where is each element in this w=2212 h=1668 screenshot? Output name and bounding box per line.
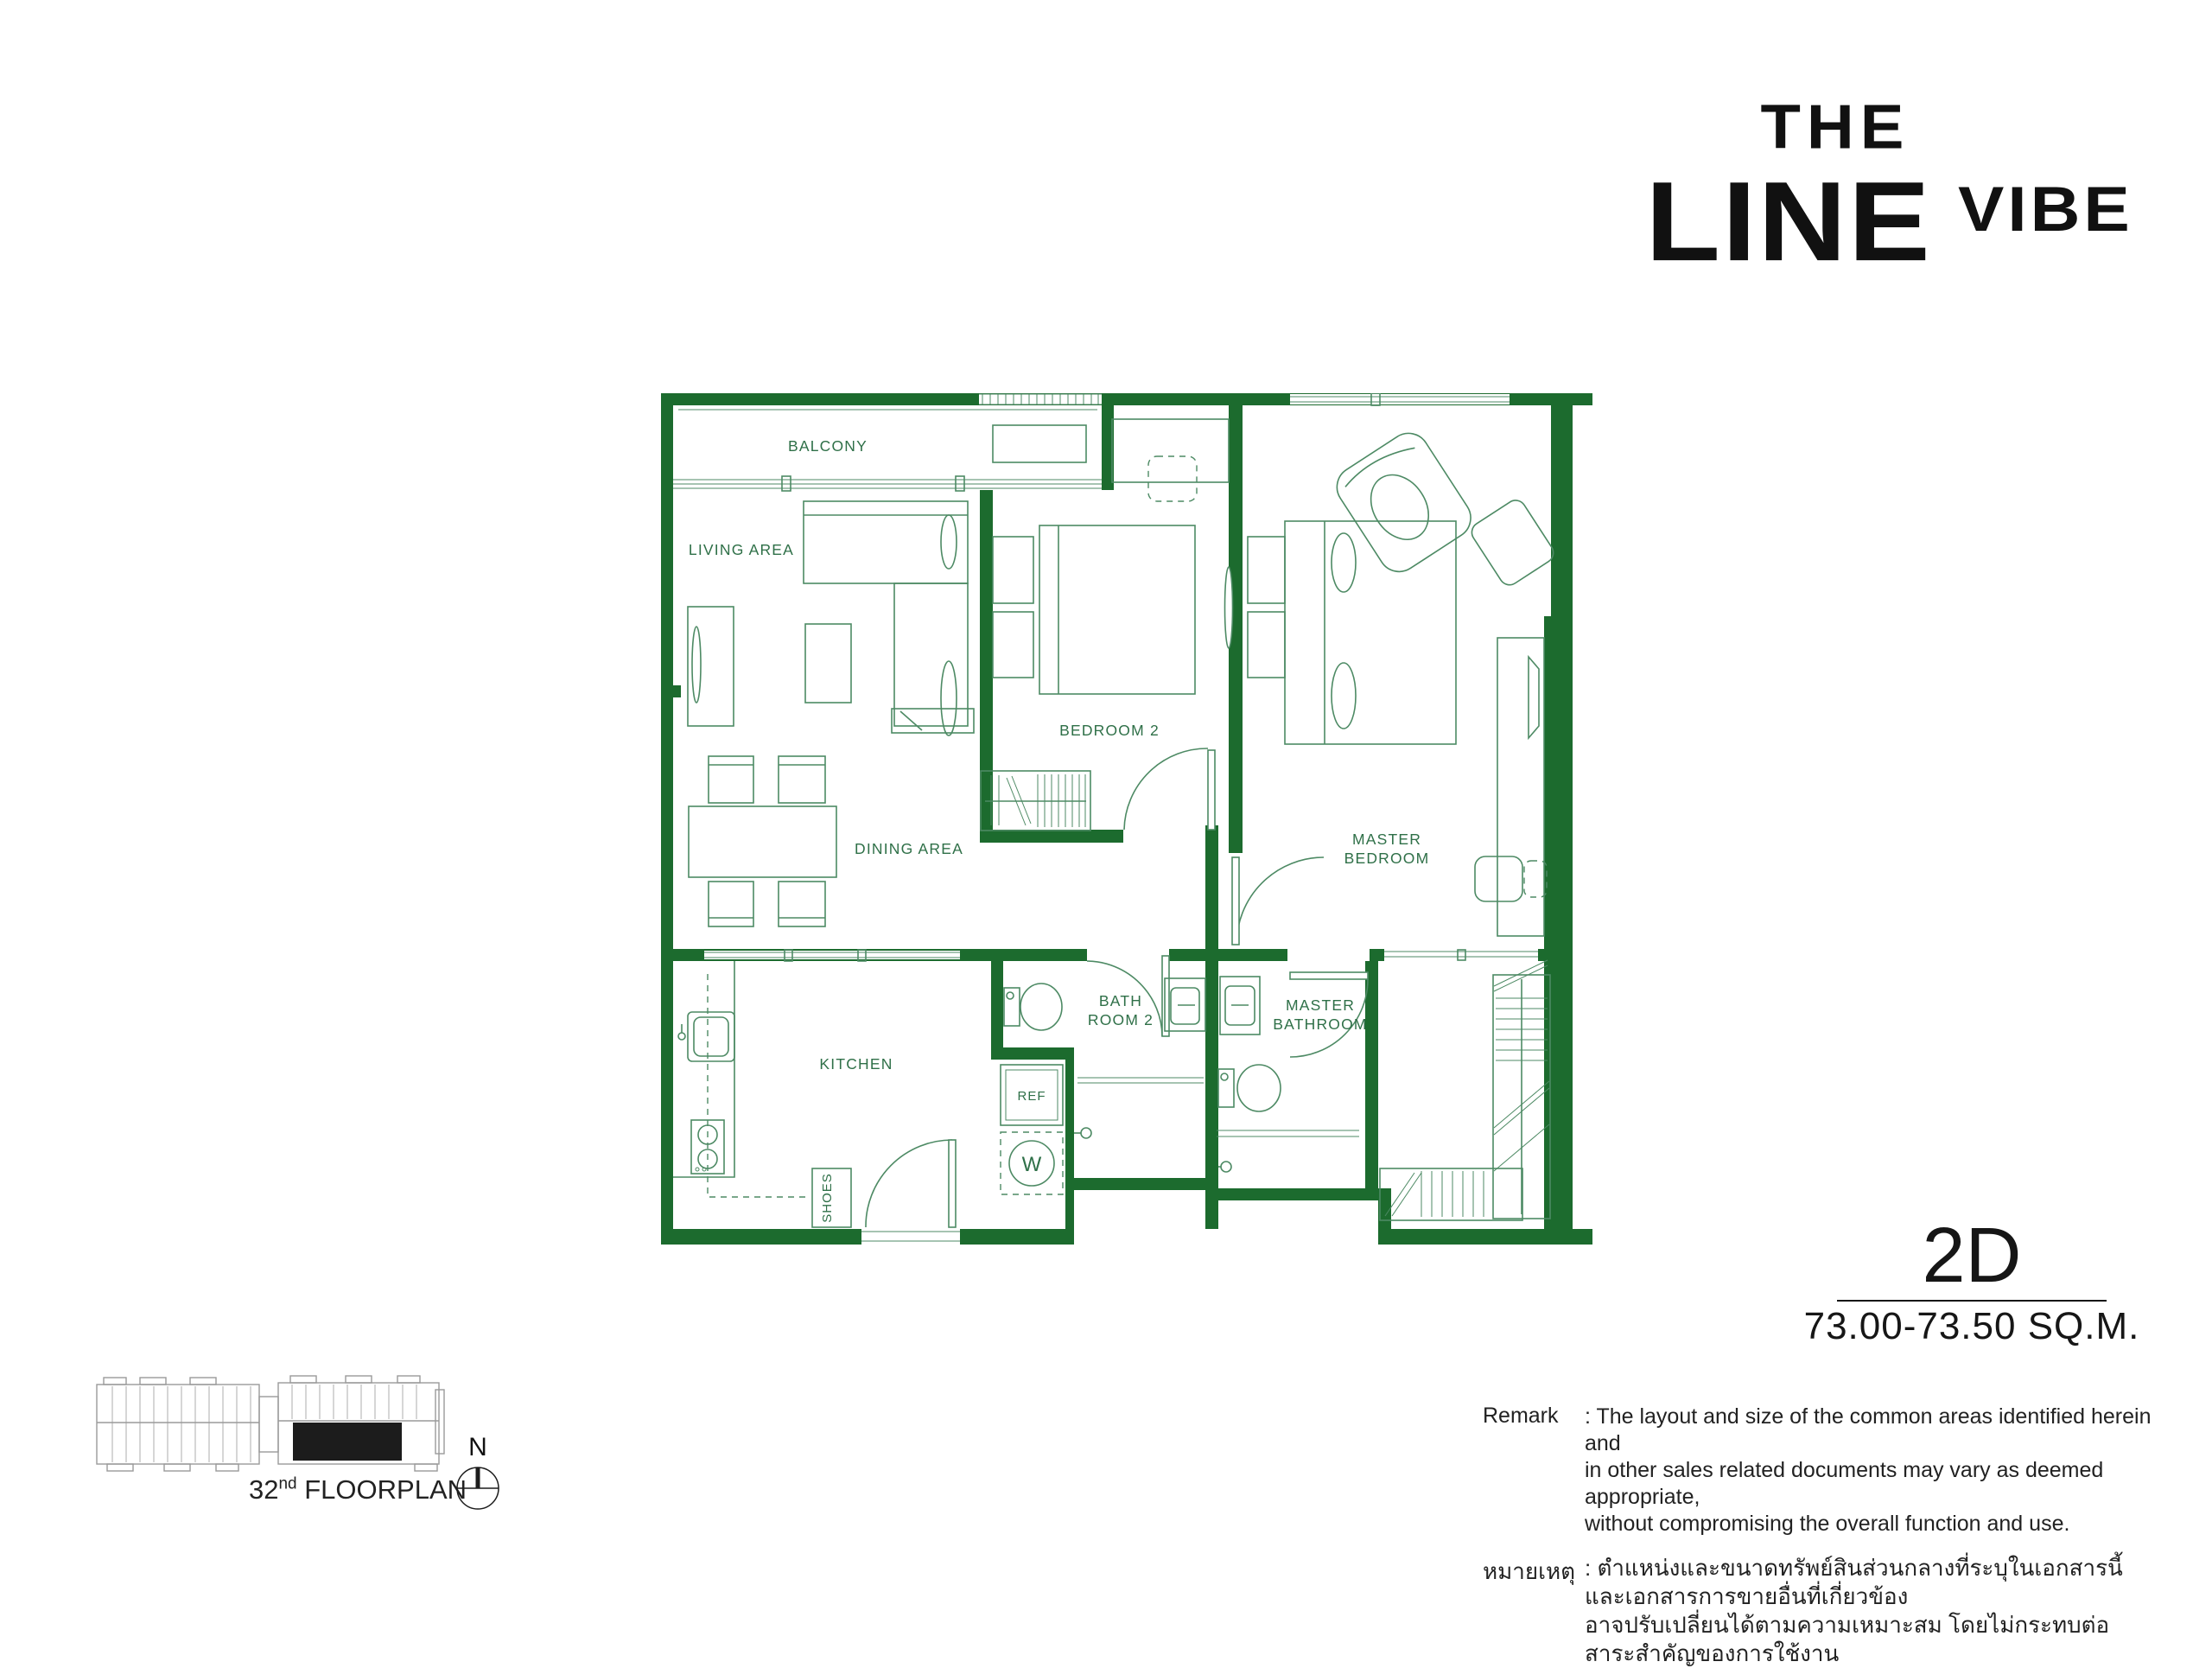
floor-caption-text: FLOORPLAN [297, 1474, 467, 1505]
doors [866, 567, 1368, 1227]
remark-thai-label: หมายเหตุ [1483, 1554, 1585, 1589]
remark-line-2: in other sales related documents may var… [1585, 1457, 2157, 1511]
unit-code: 2D [1797, 1217, 2146, 1295]
remark-line-1: : The layout and size of the common area… [1585, 1404, 2157, 1457]
logo-line: LINE [1628, 166, 1949, 279]
unit-area: 73.00-73.50 SQ.M. [1797, 1305, 2146, 1348]
building-outline [97, 1376, 444, 1471]
floor-number: 32 [249, 1474, 278, 1505]
remark-thai-line-2: อาจปรับเปลี่ยนได้ตามความเหมาะสม โดยไม่กร… [1585, 1611, 2157, 1668]
windows [673, 393, 1538, 1241]
remark-thai-line-1: : ตำแหน่งและขนาดทรัพย์สินส่วนกลางที่ระบุ… [1585, 1554, 2157, 1611]
compass-icon [453, 1463, 503, 1513]
label-dining-area: DINING AREA [855, 840, 963, 857]
label-master-bedroom: MASTER [1352, 831, 1421, 848]
logo-vibe: VIBE [1958, 173, 2131, 246]
walkin-closet [1380, 960, 1550, 1220]
label-bathroom2: BATH [1099, 992, 1142, 1009]
unit-summary: 2D 73.00-73.50 SQ.M. [1797, 1217, 2146, 1348]
living-furniture [688, 501, 968, 735]
svg-text:BATHROOM: BATHROOM [1273, 1015, 1367, 1033]
label-kitchen: KITCHEN [819, 1055, 893, 1073]
remark-block: Remark : The layout and size of the comm… [1483, 1404, 2157, 1668]
compass-north-label: N [463, 1433, 493, 1462]
label-balcony: BALCONY [788, 437, 868, 455]
unit-location-highlight [293, 1423, 402, 1461]
label-bedroom2: BEDROOM 2 [1059, 722, 1160, 739]
floorplan-drawing: BALCONY LIVING AREA DINING AREA BEDROOM … [661, 393, 1592, 1245]
label-living-area: LIVING AREA [689, 541, 794, 558]
dining-furniture [689, 709, 974, 926]
label-shoes: SHOES [820, 1173, 835, 1223]
floor-caption: 32nd FLOORPLAN [249, 1474, 474, 1506]
floor-suffix: nd [278, 1475, 296, 1493]
logo-the: THE [1759, 92, 1911, 163]
balcony-furniture [993, 425, 1086, 462]
svg-text:ROOM 2: ROOM 2 [1088, 1011, 1154, 1028]
remark-line-3: without compromising the overall functio… [1585, 1511, 2157, 1537]
label-master-bathroom: MASTER [1286, 996, 1355, 1014]
remark-label: Remark [1483, 1404, 1585, 1429]
label-ref: REF [1018, 1089, 1046, 1104]
svg-text:BEDROOM: BEDROOM [1344, 850, 1430, 867]
label-washer: W [1022, 1153, 1042, 1176]
unit-rule [1837, 1300, 2107, 1302]
